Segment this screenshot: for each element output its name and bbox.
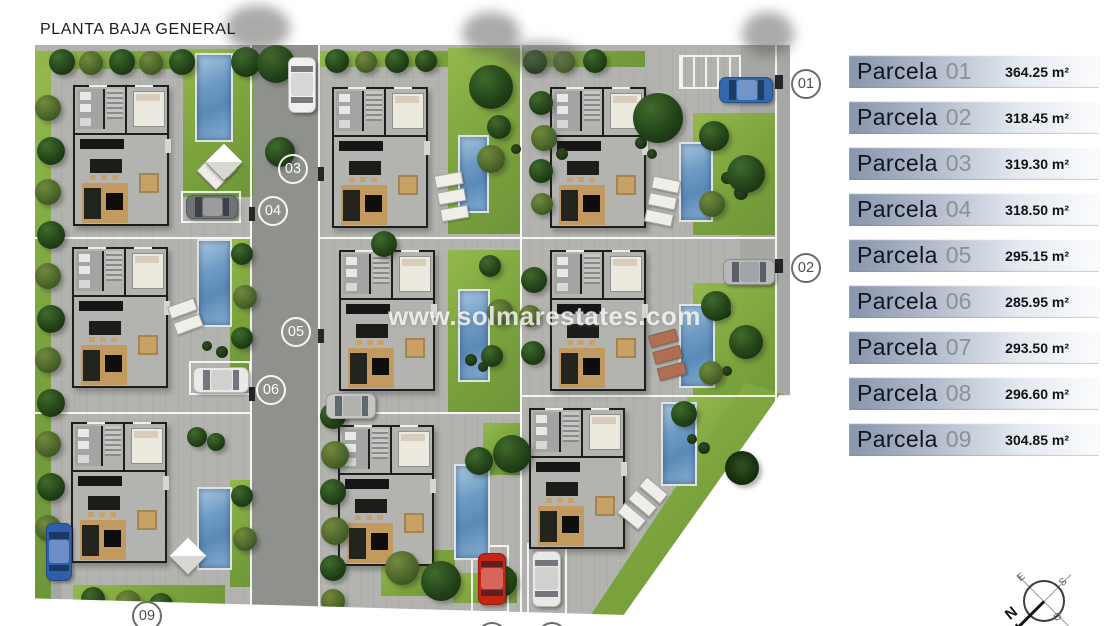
tree-icon xyxy=(79,51,103,75)
car-detail xyxy=(481,568,502,589)
tree-icon xyxy=(531,125,557,151)
house-bed-icon xyxy=(399,256,431,292)
tree-icon xyxy=(231,485,253,507)
tree-icon xyxy=(729,325,763,359)
house-sofa-icon xyxy=(83,350,100,381)
house-ctable-icon xyxy=(372,358,389,375)
house-wallh-icon xyxy=(552,135,644,137)
tree-icon xyxy=(421,561,461,601)
house xyxy=(71,422,167,563)
car-detail xyxy=(49,532,70,538)
car-detail xyxy=(335,396,342,417)
car-detail xyxy=(535,591,557,597)
house-kitchen-icon xyxy=(339,141,383,151)
parcela-label: Parcela xyxy=(857,196,938,223)
tree-shadow xyxy=(742,12,794,56)
tree-icon xyxy=(231,243,253,265)
car-icon xyxy=(723,259,775,285)
house-wallh-icon xyxy=(75,133,167,135)
tree-icon xyxy=(233,285,257,309)
car-detail xyxy=(291,66,313,72)
tree-icon xyxy=(355,51,377,73)
car-detail xyxy=(233,370,239,390)
car-icon xyxy=(719,77,773,103)
plot-divider-line xyxy=(35,412,252,414)
legend-row: Parcela 02 318.45 m² xyxy=(849,101,1099,134)
parcela-number: 03 xyxy=(946,150,972,177)
house-bed-icon xyxy=(392,93,424,129)
bush-icon xyxy=(722,366,732,376)
tree-icon xyxy=(487,115,511,139)
parcela-label: Parcela xyxy=(857,58,938,85)
parcela-number: 09 xyxy=(946,426,972,453)
tree-icon xyxy=(477,145,505,173)
house-wallh-icon xyxy=(341,298,433,300)
house-bed-icon xyxy=(589,414,621,450)
house-terrace-icon xyxy=(138,335,158,355)
tree-shadow xyxy=(500,42,580,70)
tree-icon xyxy=(521,341,545,365)
car-icon xyxy=(46,523,72,581)
tree-icon xyxy=(529,91,553,115)
lounger-icon xyxy=(651,175,681,194)
tree-icon xyxy=(37,473,65,501)
tree-icon xyxy=(35,347,61,373)
tree-icon xyxy=(671,401,697,427)
house-dining-icon xyxy=(90,159,122,173)
house-stairs-icon xyxy=(373,254,389,284)
tree-icon xyxy=(699,191,725,217)
lounger-icon xyxy=(644,209,674,228)
house-dining-icon xyxy=(349,161,381,175)
house-kitchen-icon xyxy=(345,479,389,489)
house-bed-icon xyxy=(132,253,164,289)
house-wallv-icon xyxy=(602,89,604,135)
tree-icon xyxy=(699,361,723,385)
house-chairs-icon xyxy=(567,177,599,182)
tree-icon xyxy=(109,49,135,75)
parcela-number: 07 xyxy=(946,334,972,361)
house-wallv-icon xyxy=(390,427,392,473)
house-terrace-icon xyxy=(404,513,424,533)
legend-row: Parcela 01 364.25 m² xyxy=(849,55,1099,88)
car-icon xyxy=(532,551,561,607)
tree-icon xyxy=(207,433,225,451)
tree-icon xyxy=(139,51,163,75)
parcela-label: Parcela xyxy=(857,426,938,453)
parcela-area: 304.85 m² xyxy=(1005,432,1069,448)
tree-icon xyxy=(35,263,61,289)
tree-icon xyxy=(583,49,607,73)
house-dining-icon xyxy=(567,161,599,175)
parcela-number: 05 xyxy=(946,242,972,269)
house-sofa-icon xyxy=(82,525,99,556)
tree-icon xyxy=(727,155,765,193)
house-ctable-icon xyxy=(104,530,121,547)
parcela-area: 319.30 m² xyxy=(1005,156,1069,172)
house-bath-icon xyxy=(554,91,582,131)
house-sofa-icon xyxy=(561,190,578,221)
tree-icon xyxy=(320,555,346,581)
house-stairs-icon xyxy=(107,89,123,119)
bush-icon xyxy=(511,144,521,154)
tree-icon xyxy=(531,193,553,215)
gate xyxy=(318,167,324,181)
tree-icon xyxy=(37,221,65,249)
tree-icon xyxy=(169,49,195,75)
house-wallv-icon xyxy=(124,249,126,295)
house-kitchen-icon xyxy=(79,301,123,311)
plot-marker-01: 01 xyxy=(791,69,821,99)
house-ctable-icon xyxy=(562,516,579,533)
bush-icon xyxy=(698,442,710,454)
car-detail xyxy=(740,262,759,282)
tree-icon xyxy=(493,435,531,473)
car-detail xyxy=(481,561,503,567)
parcela-number: 04 xyxy=(946,196,972,223)
car-icon xyxy=(186,195,238,219)
house-wallh-icon xyxy=(74,295,166,297)
house-stairs-icon xyxy=(584,254,600,284)
car-icon xyxy=(478,553,506,605)
house-ctable-icon xyxy=(365,195,382,212)
house-terrace-icon xyxy=(137,510,157,530)
house-ctable-icon xyxy=(583,195,600,212)
house-ctable-icon xyxy=(583,358,600,375)
legend-row: Parcela 08 296.60 m² xyxy=(849,377,1099,410)
house-dining-icon xyxy=(89,321,121,335)
site-plan xyxy=(35,45,790,626)
car-detail xyxy=(535,560,558,566)
house-terrace-icon xyxy=(398,175,418,195)
house-wallh-icon xyxy=(340,473,432,475)
tree-icon xyxy=(325,49,349,73)
tree-icon xyxy=(529,159,553,183)
parcela-label: Parcela xyxy=(857,380,938,407)
gate xyxy=(775,259,783,273)
car-detail xyxy=(49,540,69,563)
parcela-area: 318.45 m² xyxy=(1005,110,1069,126)
tree-icon xyxy=(49,49,75,75)
house-wallh-icon xyxy=(552,298,644,300)
house-terrace-icon xyxy=(616,175,636,195)
tree-icon xyxy=(37,137,65,165)
car-detail xyxy=(729,80,736,101)
house-dining-icon xyxy=(88,496,120,510)
legend-row: Parcela 04 318.50 m² xyxy=(849,193,1099,226)
house-wallv-icon xyxy=(384,89,386,135)
tree-icon xyxy=(385,49,409,73)
parcela-label: Parcela xyxy=(857,104,938,131)
house-stairs-icon xyxy=(366,91,382,121)
house-bath-icon xyxy=(76,251,104,291)
parcela-number: 02 xyxy=(946,104,972,131)
lounger-icon xyxy=(440,205,470,223)
house-bath-icon xyxy=(554,254,582,294)
car-detail xyxy=(732,262,739,283)
car-detail xyxy=(535,567,557,589)
house xyxy=(529,408,625,549)
house xyxy=(73,85,169,226)
house-dining-icon xyxy=(546,482,578,496)
tree-icon xyxy=(35,95,61,121)
parcela-label: Parcela xyxy=(857,288,938,315)
house-chairs-icon xyxy=(89,337,121,342)
tree-icon xyxy=(35,179,61,205)
tree-icon xyxy=(633,93,683,143)
lounger-icon xyxy=(647,192,677,211)
car-icon xyxy=(193,367,249,393)
house-kitchen-icon xyxy=(346,304,390,314)
lounger-group xyxy=(643,175,683,231)
compass-label-north: N xyxy=(1002,604,1021,624)
bush-icon xyxy=(216,346,228,358)
tree-icon xyxy=(37,305,65,333)
gate xyxy=(249,387,255,401)
car-detail xyxy=(758,80,764,100)
house-wallv-icon xyxy=(602,252,604,298)
house-door-icon xyxy=(430,479,436,493)
page-title: PLANTA BAJA GENERAL xyxy=(40,21,236,39)
house-bed-icon xyxy=(131,428,163,464)
house-stairs-icon xyxy=(563,412,579,442)
house-sofa-icon xyxy=(561,353,578,384)
car-detail xyxy=(737,80,757,100)
house xyxy=(72,247,168,388)
parcela-number: 08 xyxy=(946,380,972,407)
house-sofa-icon xyxy=(343,190,360,221)
tree-icon xyxy=(521,267,547,293)
house-stairs-icon xyxy=(105,426,121,456)
house-stairs-icon xyxy=(106,251,122,281)
house-chairs-icon xyxy=(356,340,388,345)
tree-icon xyxy=(699,121,729,151)
plot-marker-02: 02 xyxy=(791,253,821,283)
tree-icon xyxy=(37,389,65,417)
tree-icon xyxy=(701,291,731,321)
house-bed-icon xyxy=(610,256,642,292)
lounger-icon xyxy=(437,188,467,206)
house-door-icon xyxy=(165,139,171,153)
tree-icon xyxy=(371,231,397,257)
house-sofa-icon xyxy=(540,511,557,542)
car-detail xyxy=(203,370,210,391)
house-bed-icon xyxy=(398,431,430,467)
house-kitchen-icon xyxy=(536,462,580,472)
car-detail xyxy=(291,97,312,103)
legend-row: Parcela 05 295.15 m² xyxy=(849,239,1099,272)
house-wallv-icon xyxy=(125,87,127,133)
car-icon xyxy=(288,57,316,113)
car-icon xyxy=(326,393,376,419)
house-dining-icon xyxy=(355,499,387,513)
parcela-label: Parcela xyxy=(857,242,938,269)
plot-divider-line xyxy=(520,45,522,626)
house-sofa-icon xyxy=(350,353,367,384)
house-chairs-icon xyxy=(90,175,122,180)
car-detail xyxy=(343,396,362,416)
house-terrace-icon xyxy=(595,496,615,516)
house-chairs-icon xyxy=(355,515,387,520)
bush-icon xyxy=(202,341,212,351)
parcela-label: Parcela xyxy=(857,150,938,177)
parcela-area: 296.60 m² xyxy=(1005,386,1069,402)
house-wallv-icon xyxy=(123,424,125,470)
tree-icon xyxy=(481,345,503,367)
bush-icon xyxy=(687,434,697,444)
house-chairs-icon xyxy=(567,340,599,345)
house-sofa-icon xyxy=(349,528,366,559)
house-bath-icon xyxy=(75,426,103,466)
house-wallh-icon xyxy=(531,456,623,458)
house-door-icon xyxy=(621,462,627,476)
house xyxy=(332,87,428,228)
legend-row: Parcela 06 285.95 m² xyxy=(849,285,1099,318)
house-wallv-icon xyxy=(391,252,393,298)
lounger-icon xyxy=(657,361,687,381)
car-detail xyxy=(362,396,368,416)
gate xyxy=(318,329,324,343)
car-detail xyxy=(481,590,502,595)
gate xyxy=(249,207,255,221)
bush-icon xyxy=(556,148,568,160)
parcela-number: 01 xyxy=(946,58,972,85)
house-bath-icon xyxy=(343,254,371,294)
legend-row: Parcela 03 319.30 m² xyxy=(849,147,1099,180)
watermark: www.solmarestates.com xyxy=(388,301,701,332)
bush-icon xyxy=(647,149,657,159)
house-wallh-icon xyxy=(334,135,426,137)
tree-icon xyxy=(479,255,501,277)
tree-icon xyxy=(320,479,346,505)
car-detail xyxy=(203,198,222,216)
compass: E S O N xyxy=(1000,545,1100,625)
house-dining-icon xyxy=(356,324,388,338)
house-chairs-icon xyxy=(546,498,578,503)
house xyxy=(338,425,434,566)
house-stairs-icon xyxy=(584,91,600,121)
tree-icon xyxy=(465,447,493,475)
parcela-area: 285.95 m² xyxy=(1005,294,1069,310)
house-ctable-icon xyxy=(106,193,123,210)
tree-icon xyxy=(385,551,419,585)
house-door-icon xyxy=(163,476,169,490)
legend: Parcela 01 364.25 m² Parcela 02 318.45 m… xyxy=(849,55,1099,469)
tree-icon xyxy=(321,441,349,469)
house-bath-icon xyxy=(336,91,364,131)
pool xyxy=(454,464,490,560)
gate xyxy=(775,75,783,89)
tree-icon xyxy=(233,527,257,551)
house-ctable-icon xyxy=(105,355,122,372)
plot-divider-line xyxy=(520,395,775,397)
lounger-icon xyxy=(434,171,464,189)
tree-icon xyxy=(469,65,513,109)
house-bath-icon xyxy=(533,412,561,452)
compass-label-west: O xyxy=(1051,611,1064,624)
house-sofa-icon xyxy=(84,188,101,219)
car-detail xyxy=(760,262,766,282)
legend-row: Parcela 07 293.50 m² xyxy=(849,331,1099,364)
tree-icon xyxy=(35,431,61,457)
bush-icon xyxy=(465,354,477,366)
plot-marker-09: 09 xyxy=(132,601,162,626)
house-terrace-icon xyxy=(616,338,636,358)
tree-icon xyxy=(187,427,207,447)
tree-icon xyxy=(231,327,253,349)
house-ctable-icon xyxy=(371,533,388,550)
pool xyxy=(197,239,232,327)
tree-icon xyxy=(415,50,437,72)
house-wallv-icon xyxy=(581,410,583,456)
house-terrace-icon xyxy=(405,338,425,358)
parcela-area: 318.50 m² xyxy=(1005,202,1069,218)
plot-marker-06: 06 xyxy=(256,375,286,405)
parcela-area: 293.50 m² xyxy=(1005,340,1069,356)
plot-marker-05: 05 xyxy=(281,317,311,347)
house-wallh-icon xyxy=(73,470,165,472)
plot-marker-04: 04 xyxy=(258,196,288,226)
pool xyxy=(195,53,233,142)
parcela-number: 06 xyxy=(946,288,972,315)
legend-row: Parcela 09 304.85 m² xyxy=(849,423,1099,456)
house-bath-icon xyxy=(77,89,105,129)
house-door-icon xyxy=(424,141,430,155)
house-chairs-icon xyxy=(88,512,120,517)
car-detail xyxy=(49,565,69,571)
house-terrace-icon xyxy=(139,173,159,193)
screenshot-canvas: PLANTA BAJA GENERAL www.solmarestates.co… xyxy=(0,0,1110,626)
car-detail xyxy=(291,73,312,95)
car-detail xyxy=(195,197,202,216)
house-chairs-icon xyxy=(349,177,381,182)
plot-marker-03: 03 xyxy=(278,154,308,184)
parcela-area: 295.15 m² xyxy=(1005,248,1069,264)
house-stairs-icon xyxy=(372,429,388,459)
parcela-area: 364.25 m² xyxy=(1005,64,1069,80)
house-bed-icon xyxy=(133,91,165,127)
car-detail xyxy=(211,370,232,390)
car-detail xyxy=(223,198,229,216)
house-kitchen-icon xyxy=(80,139,124,149)
parcela-label: Parcela xyxy=(857,334,938,361)
house-kitchen-icon xyxy=(78,476,122,486)
tree-icon xyxy=(725,451,759,485)
tree-icon xyxy=(321,517,349,545)
